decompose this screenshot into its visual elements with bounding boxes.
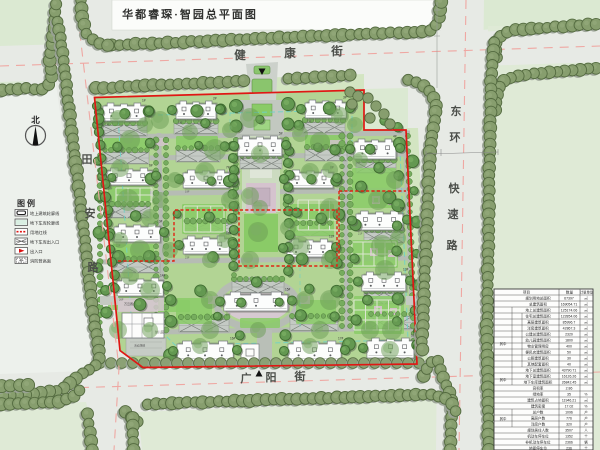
svg-text:1800: 1800: [565, 338, 573, 342]
svg-text:776: 776: [566, 416, 572, 420]
svg-text:40: 40: [567, 362, 571, 366]
svg-text:户: 户: [584, 409, 587, 414]
svg-text:公厕建筑面积: 公厕建筑面积: [527, 355, 549, 360]
svg-text:消防登高面: 消防登高面: [30, 257, 51, 264]
svg-text:用地红线: 用地红线: [30, 229, 48, 236]
svg-text:25F: 25F: [364, 293, 369, 297]
svg-text:规划用地总面积: 规划用地总面积: [525, 295, 551, 300]
svg-text:15F: 15F: [307, 120, 312, 124]
svg-text:北: 北: [31, 115, 40, 125]
svg-text:30: 30: [567, 356, 571, 360]
svg-text:快: 快: [448, 181, 461, 195]
svg-text:1352: 1352: [565, 434, 573, 438]
svg-text:122854.06: 122854.06: [561, 314, 578, 318]
svg-text:总户数: 总户数: [533, 409, 544, 414]
svg-text:16126.26: 16126.26: [562, 374, 577, 378]
svg-text:43790.71: 43790.71: [562, 368, 577, 372]
svg-text:阳: 阳: [266, 370, 277, 384]
svg-text:地下车库建筑面积: 地下车库建筑面积: [524, 379, 553, 384]
svg-text:广: 广: [241, 371, 252, 385]
svg-text:地上建筑轮廓线: 地上建筑轮廓线: [30, 210, 60, 217]
svg-text:地上总建筑面积: 地上总建筑面积: [525, 307, 551, 312]
svg-text:计量单位: 计量单位: [580, 290, 594, 295]
svg-text:85996.7: 85996.7: [563, 320, 576, 324]
svg-text:17#: 17#: [338, 337, 344, 341]
svg-text:健: 健: [234, 48, 246, 62]
svg-text:图例: 图例: [17, 198, 37, 208]
svg-text:地下车库出入口: 地下车库出入口: [30, 238, 59, 245]
svg-text:20F: 20F: [290, 190, 295, 194]
svg-text:高层建筑面积: 高层建筑面积: [527, 319, 549, 324]
svg-text:26842.45: 26842.45: [562, 380, 577, 384]
svg-text:街: 街: [294, 369, 306, 383]
svg-text:活动场地: 活动场地: [134, 344, 145, 348]
svg-text:35: 35: [567, 392, 571, 396]
svg-text:23F: 23F: [185, 256, 190, 260]
svg-text:13F: 13F: [105, 123, 110, 127]
svg-text:1096: 1096: [565, 410, 573, 414]
svg-text:11946.21: 11946.21: [562, 398, 576, 402]
svg-text:2#: 2#: [213, 97, 217, 101]
svg-text:320: 320: [566, 422, 572, 426]
svg-text:5#: 5#: [279, 132, 283, 136]
svg-text:236: 236: [566, 446, 572, 450]
svg-text:洋房户数: 洋房户数: [531, 421, 546, 426]
svg-text:公建总建筑面积: 公建总建筑面积: [525, 331, 551, 336]
svg-text:建筑密度: 建筑密度: [531, 403, 546, 408]
svg-text:24F: 24F: [289, 259, 294, 263]
svg-text:6#: 6#: [149, 164, 153, 168]
svg-text:19F: 19F: [185, 190, 190, 194]
svg-text:其他配套面积: 其他配套面积: [527, 361, 549, 366]
svg-text:15#: 15#: [285, 288, 291, 292]
svg-text:%: %: [585, 392, 588, 396]
svg-text:数量: 数量: [566, 290, 574, 295]
svg-text:容积率: 容积率: [533, 385, 544, 390]
svg-text:高层户数: 高层户数: [531, 415, 546, 420]
svg-text:26F: 26F: [119, 298, 124, 302]
svg-text:9#: 9#: [400, 207, 404, 211]
svg-text:建筑占地面积: 建筑占地面积: [527, 397, 549, 402]
svg-text:物业管理用房: 物业管理用房: [527, 343, 549, 348]
svg-text:2.86: 2.86: [566, 386, 573, 390]
svg-text:13#: 13#: [403, 268, 409, 272]
svg-text:户: 户: [584, 421, 587, 426]
svg-text:洋房建筑面积: 洋房建筑面积: [527, 325, 549, 330]
svg-text:路: 路: [447, 238, 459, 252]
svg-text:27F: 27F: [226, 313, 231, 317]
svg-text:2320: 2320: [565, 332, 573, 336]
svg-text:路: 路: [88, 260, 100, 274]
svg-text:14F: 14F: [178, 121, 183, 125]
svg-text:户: 户: [584, 415, 587, 420]
svg-text:17F: 17F: [240, 158, 245, 162]
svg-text:项目: 项目: [523, 290, 530, 295]
svg-text:田: 田: [82, 153, 93, 166]
svg-text:3507: 3507: [565, 428, 573, 432]
svg-text:50: 50: [567, 350, 571, 354]
svg-text:便民店建筑面积: 便民店建筑面积: [525, 349, 551, 354]
svg-text:康: 康: [284, 46, 296, 60]
svg-text:2366: 2366: [565, 440, 573, 444]
svg-text:出入口: 出入口: [30, 248, 43, 255]
svg-text:安: 安: [85, 206, 96, 220]
svg-text:其中: 其中: [500, 341, 507, 346]
svg-text:速: 速: [448, 207, 459, 221]
svg-text:4#: 4#: [393, 135, 397, 139]
svg-text:12#: 12#: [329, 235, 335, 239]
svg-text:169054.71: 169054.71: [561, 302, 578, 306]
svg-text:地下车库轮廓线: 地下车库轮廓线: [30, 219, 60, 226]
svg-text:地下室建筑面积: 地下室建筑面积: [525, 373, 551, 378]
svg-text:42867.3: 42867.3: [563, 326, 576, 330]
svg-text:东: 东: [451, 104, 462, 118]
svg-text:1#: 1#: [142, 99, 146, 103]
svg-text:街: 街: [330, 44, 343, 58]
svg-text:总建筑面积: 总建筑面积: [529, 301, 547, 306]
svg-text:7#: 7#: [226, 166, 230, 170]
svg-text:17.02: 17.02: [565, 404, 574, 408]
svg-text:其中: 其中: [500, 416, 507, 421]
svg-text:14#: 14#: [160, 274, 166, 278]
svg-text:其中: 其中: [500, 377, 507, 382]
svg-text:16#: 16#: [230, 337, 236, 341]
svg-text:非机动车停车位: 非机动车停车位: [525, 439, 551, 444]
svg-text:400: 400: [566, 344, 572, 348]
svg-text:67397: 67397: [564, 296, 574, 300]
svg-text:环: 环: [450, 131, 461, 144]
svg-text:规划居住人数: 规划居住人数: [527, 427, 549, 432]
svg-text:绿地率: 绿地率: [533, 391, 544, 396]
svg-text:住宅总建筑面积: 住宅总建筑面积: [525, 313, 551, 318]
svg-text:21F: 21F: [358, 232, 363, 236]
svg-text:%: %: [585, 404, 588, 408]
svg-text:125174.06: 125174.06: [561, 308, 578, 312]
svg-text:机动车停车位: 机动车停车位: [527, 433, 549, 438]
svg-text:地面停车位: 地面停车位: [529, 445, 547, 450]
svg-text:地下总建筑面积: 地下总建筑面积: [525, 367, 551, 372]
svg-text:华都睿琛·智园总平面图: 华都睿琛·智园总平面图: [122, 7, 258, 21]
svg-text:幼儿园建筑面积: 幼儿园建筑面积: [525, 337, 551, 342]
